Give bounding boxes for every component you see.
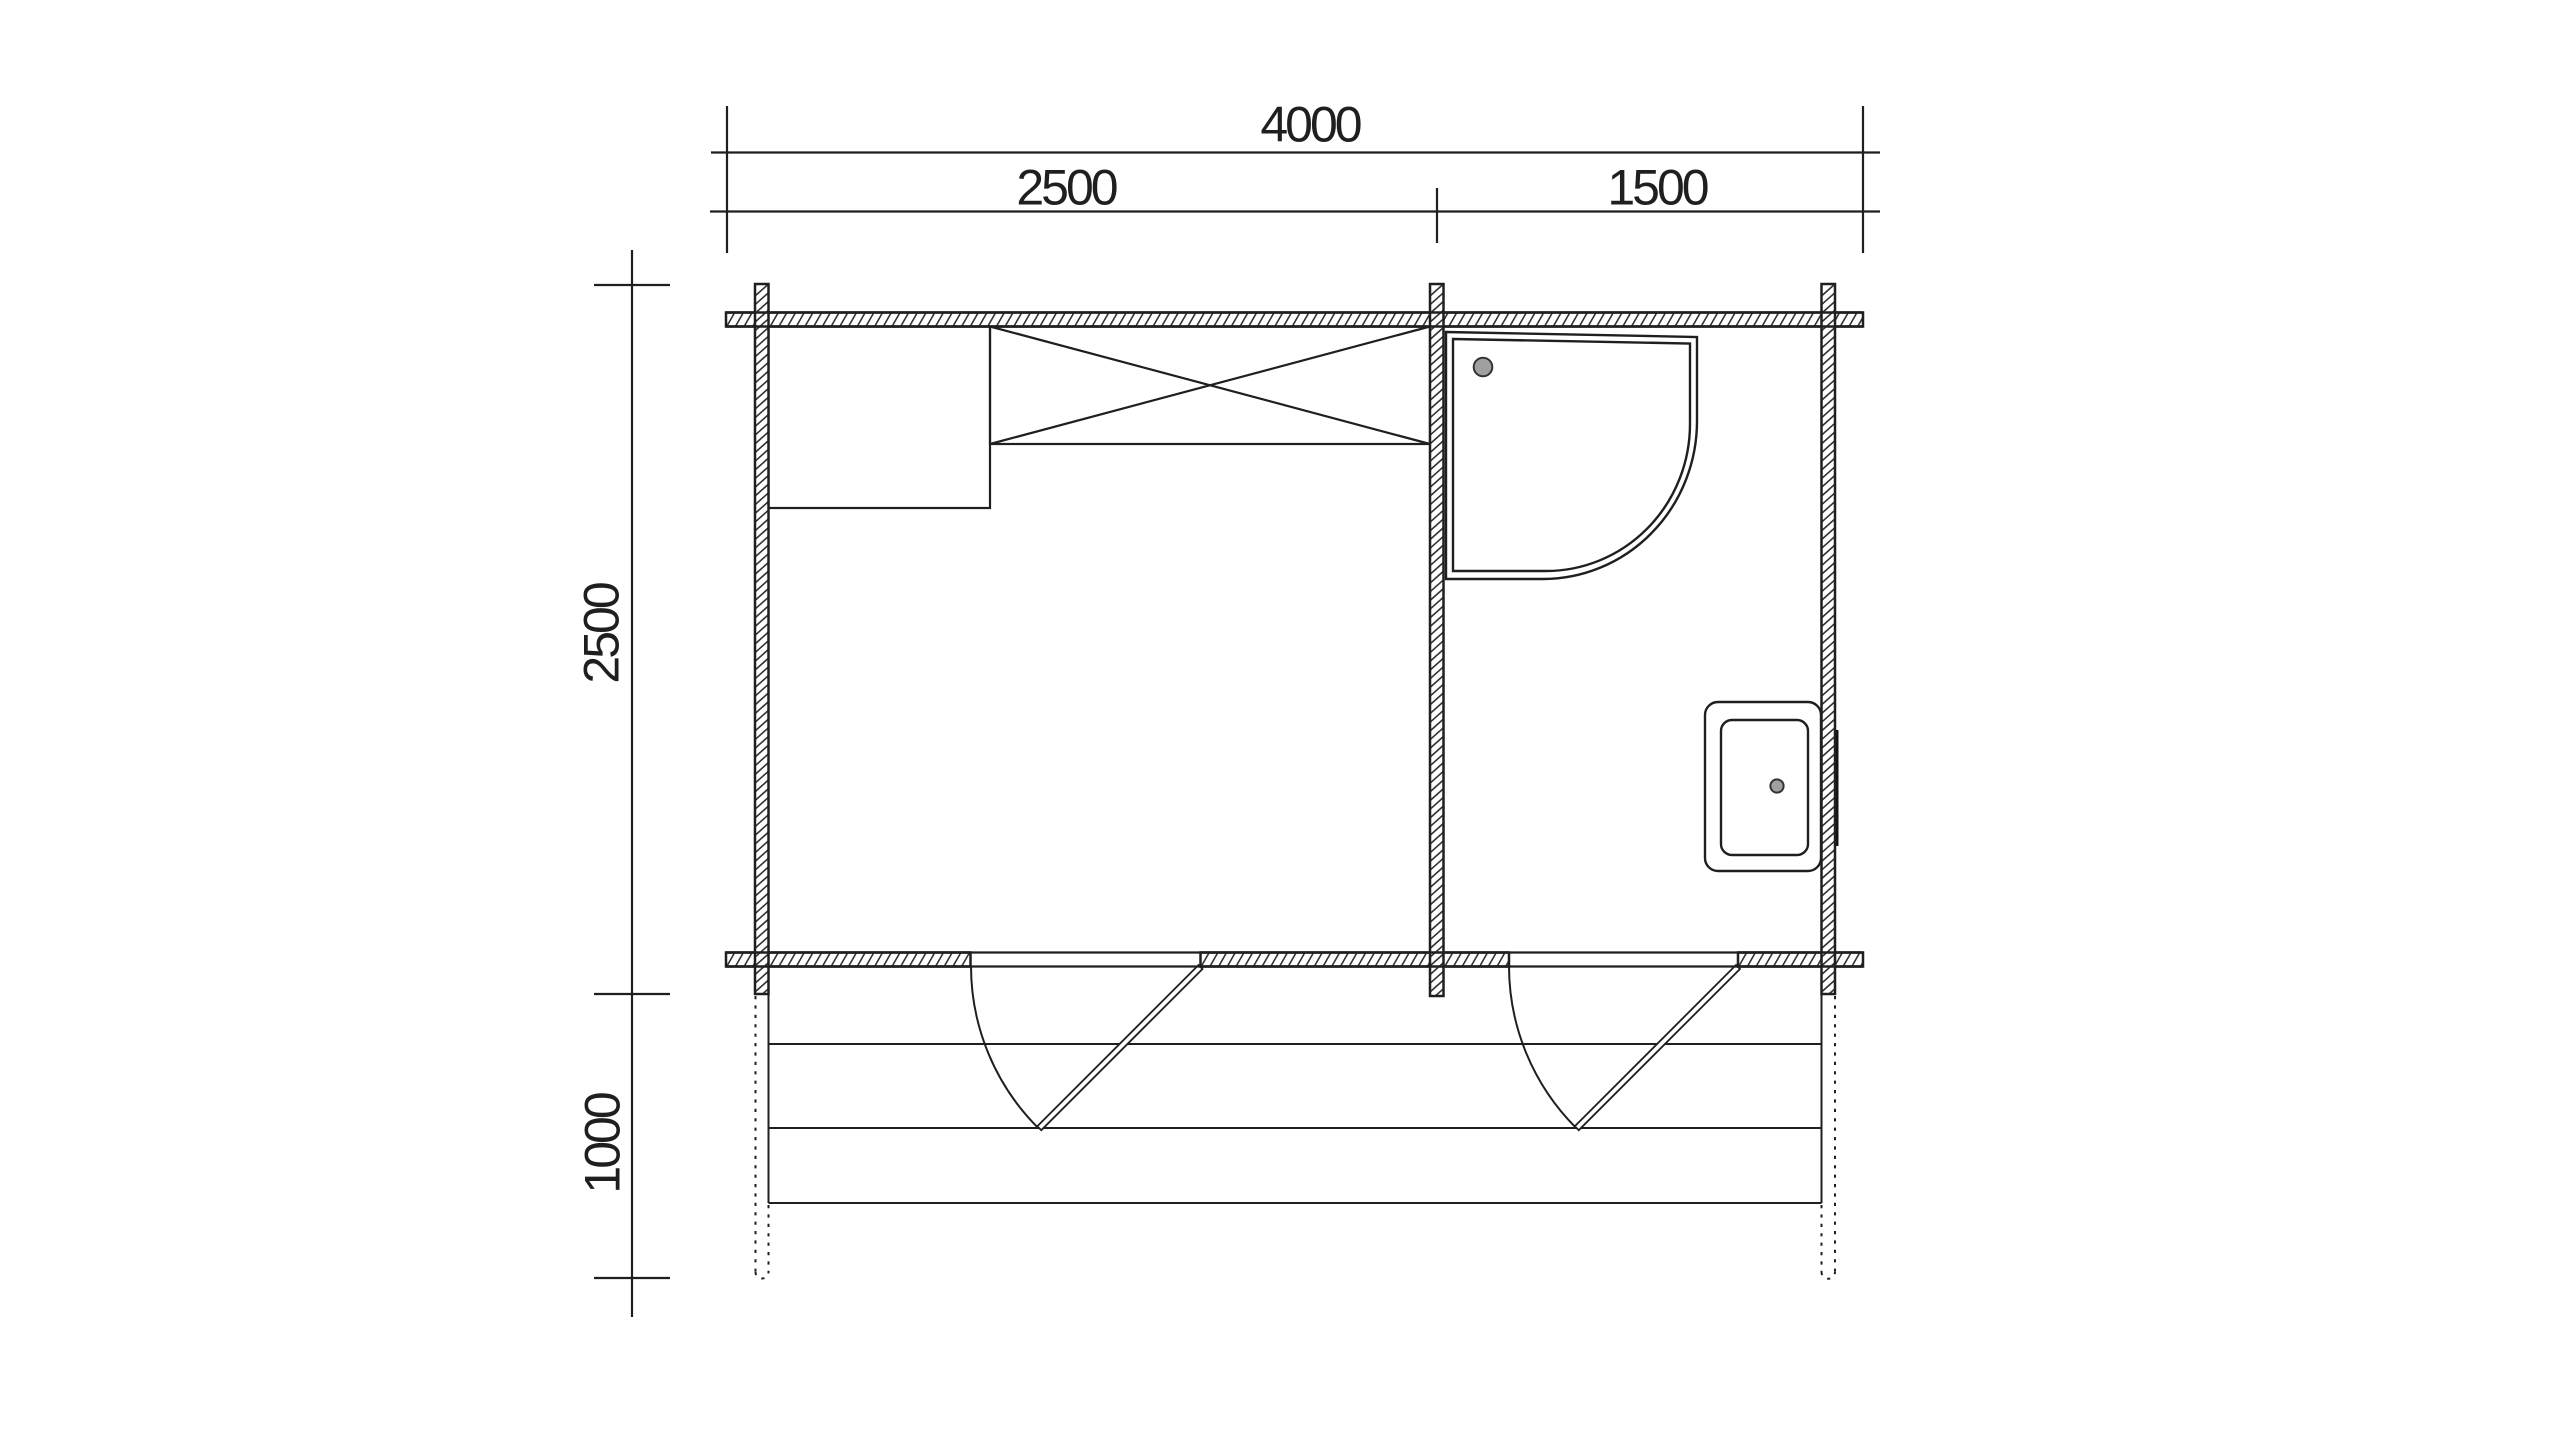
svg-text:2500: 2500: [574, 583, 630, 683]
svg-text:4000: 4000: [1260, 97, 1360, 153]
svg-text:2500: 2500: [1016, 160, 1116, 216]
svg-text:1500: 1500: [1607, 160, 1707, 216]
svg-text:1000: 1000: [575, 1093, 631, 1193]
